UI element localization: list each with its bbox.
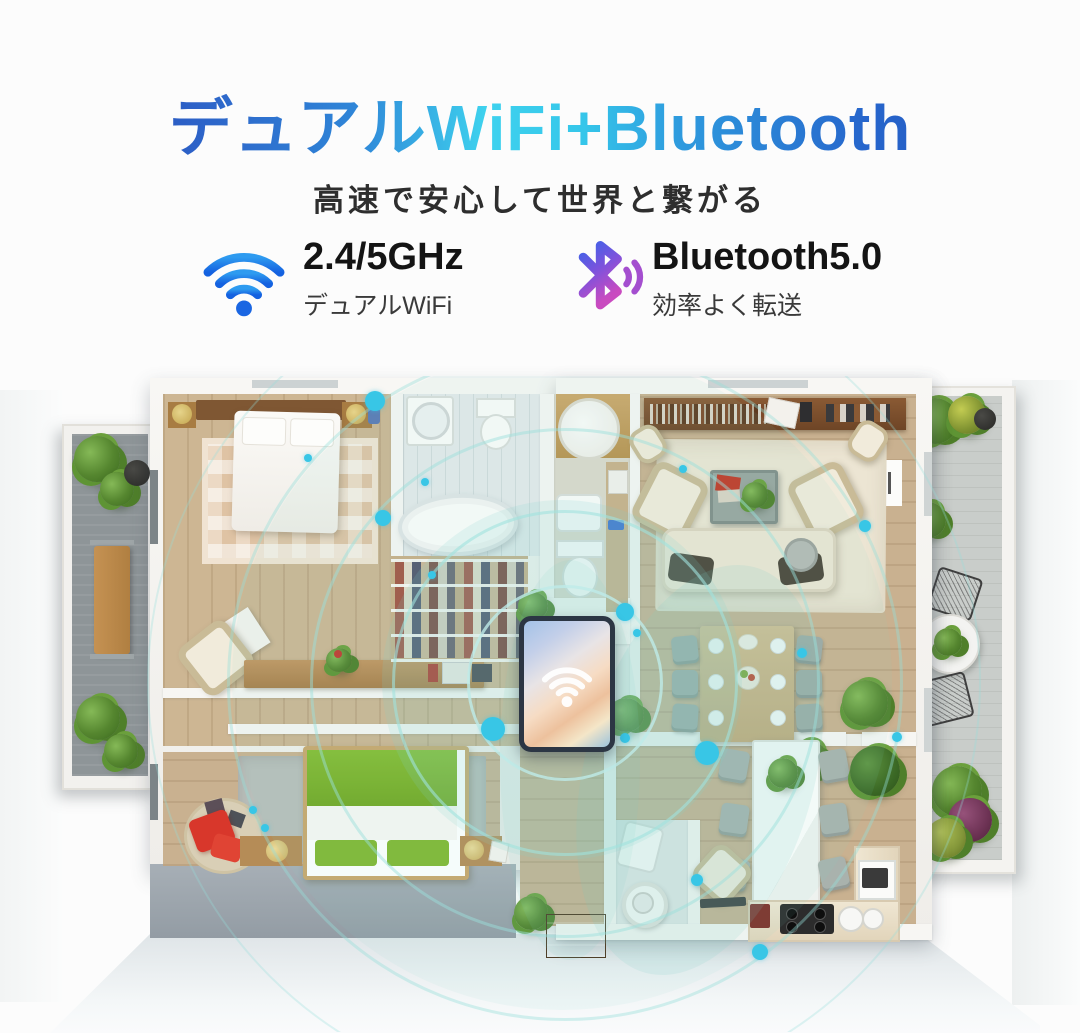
window [252,380,338,388]
burner [814,921,826,933]
floorplan-illustration [0,0,1080,1033]
signal-dot [428,571,436,579]
stove [780,904,834,934]
food [748,674,755,681]
dining-table [700,626,794,742]
window [150,470,158,544]
shelf-lamp [800,402,812,422]
product-banner: デュアルWiFi+Bluetooth 高速で安心して世界と繋がる 2.4/5GH… [0,0,1080,1033]
bench-rail [90,540,134,545]
chair [818,802,850,838]
bed [231,411,340,534]
book [764,397,801,429]
bed-green [303,746,469,880]
signal-dot [691,874,703,886]
balcony-door [884,460,902,506]
chair [717,748,750,784]
burner [814,908,826,920]
pillow [315,840,377,866]
shelf-item [608,520,624,530]
signal-dot [892,732,902,742]
signal-dot [249,806,257,814]
dining-chair [672,670,698,698]
signal-dot [365,391,385,411]
sofa-cushion [667,552,714,586]
lamp [346,404,366,424]
dining-chair [671,703,699,733]
book-spines [650,404,770,424]
plant [926,818,966,858]
signal-dot [679,465,687,473]
plant [742,482,768,508]
left-margin-shade [0,390,62,1002]
window [708,380,808,388]
oven-door [862,868,888,888]
plant [514,896,548,930]
fan-center [632,892,654,914]
plant [76,696,120,740]
plant [768,758,798,788]
dining-chair [795,703,823,733]
decor-box [488,841,509,864]
chair [718,802,750,838]
tablet-wifi-icon [540,657,594,709]
toilet [562,556,598,598]
signal-dot [616,603,634,621]
signal-dot [859,520,871,532]
side-table [784,538,818,572]
food [740,670,748,678]
platter [738,634,758,650]
bench [94,546,130,654]
pillow [387,840,449,866]
coffee-maker [750,904,770,928]
book [718,489,741,503]
signal-dot [481,717,505,741]
plate [770,638,786,654]
plate [770,674,786,690]
shelf-items [826,404,890,422]
planter-pot [974,408,996,430]
book [428,664,438,682]
burner [786,908,798,920]
kitchen-sink [838,906,864,932]
plate [708,710,724,726]
signal-dot [620,733,630,743]
toilet [480,414,512,450]
tablet-device [519,616,615,752]
dining-chair [796,670,822,698]
washer-drum [412,402,450,440]
signal-dot [797,648,807,658]
kitchen-sink [862,908,884,930]
signal-dot [304,454,312,462]
signal-dot [261,824,269,832]
duvet [307,750,457,806]
window [150,764,158,820]
burner [786,921,798,933]
book [472,664,492,682]
chair [817,748,850,784]
signal-dot [375,510,391,526]
window [924,688,932,752]
plate [770,710,786,726]
door-handle [888,472,891,494]
plate [708,638,724,654]
lamp [464,840,484,860]
wall [228,724,520,734]
basin [558,398,620,460]
plate [708,674,724,690]
plant [934,628,962,656]
floor-shadow [40,928,1040,1033]
signal-dot [752,944,768,960]
signal-dot [695,741,719,765]
wall [862,732,916,746]
book [442,662,470,684]
plant [104,734,138,768]
lamp [266,840,288,862]
shoe-closet [391,556,528,662]
pillow [290,418,335,447]
right-margin-shade [1012,380,1080,1005]
dining-chair [671,635,700,666]
shelf-lines [391,556,528,662]
wall [540,394,554,598]
signal-dot [633,629,641,637]
picture-frame [608,470,628,494]
sink [556,494,602,532]
flower [334,650,342,658]
plant [850,746,900,796]
planter-pot [124,460,150,486]
lamp [172,404,192,424]
bench-rail [90,654,134,659]
pillow [242,417,287,446]
bed-sheet [307,806,457,840]
signal-dot [421,478,429,486]
plant [842,680,888,726]
entrance-steps [546,914,606,958]
window [924,452,932,516]
